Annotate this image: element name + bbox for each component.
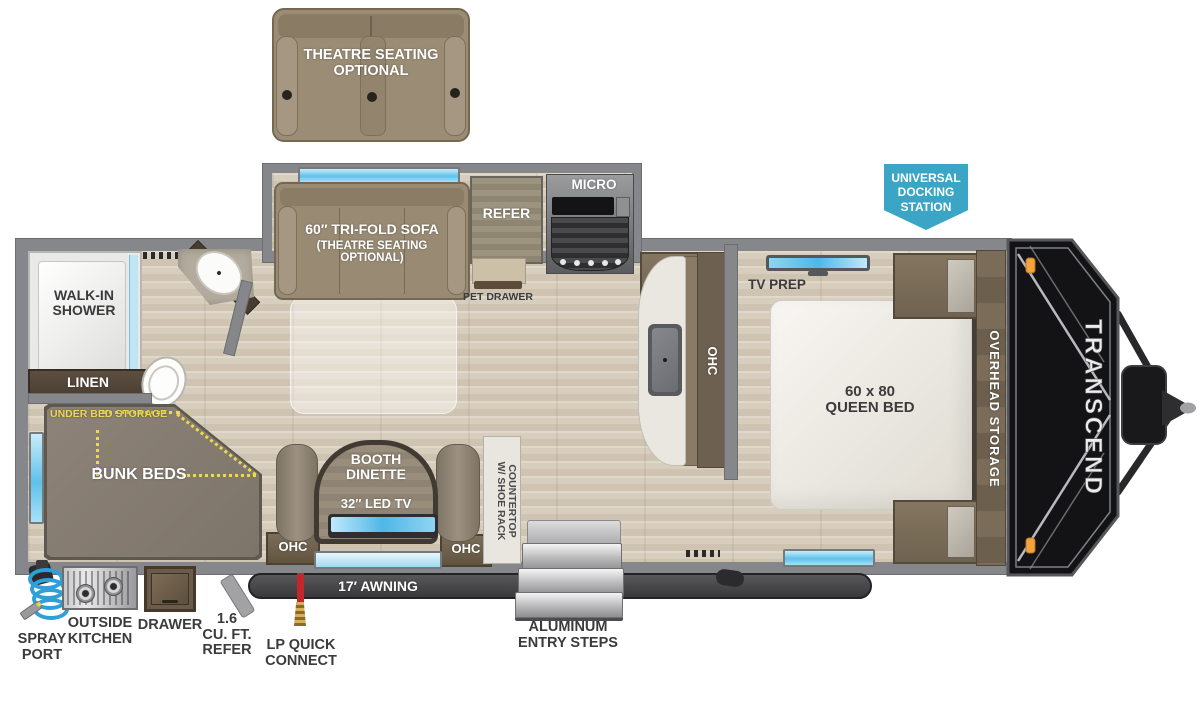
micro-label: MICRO (556, 178, 632, 193)
sofa-title-label: 60″ TRI-FOLD SOFA (284, 222, 460, 237)
outside-kitchen (62, 566, 138, 610)
front-cap-graphic: TRANSCEND (1000, 230, 1200, 600)
bedroom-wardrobe-top (893, 253, 981, 319)
range-knob-icon (574, 260, 580, 266)
kitchen-sink (648, 324, 682, 396)
under-bed-storage-label: UNDER BED STORAGE (50, 409, 186, 420)
sofa-backrest (280, 188, 464, 206)
range-knob-icon (615, 259, 621, 265)
pet-drawer-label: PET DRAWER (458, 292, 538, 303)
refer-label: REFER (470, 206, 543, 221)
kitchen-ohc-cabinet: OHC (697, 252, 725, 468)
bunk-divider-wall (28, 393, 152, 404)
marker-light-icon (1026, 538, 1035, 553)
lp-connector-icon (294, 602, 306, 626)
tv-screen (331, 517, 435, 532)
bunk-window (29, 432, 44, 524)
cupholder-icon (367, 92, 377, 102)
dinette-bench-right (436, 444, 480, 542)
drawer-label: DRAWER (136, 618, 204, 634)
sofa-sub-label: (THEATRE SEATING OPTIONAL) (284, 240, 460, 265)
burner-icon (104, 577, 123, 596)
bunk-beds-label: BUNK BEDS (84, 466, 194, 483)
microwave (552, 197, 614, 215)
countertop-label: COUNTERTOP W/ SHOE RACK (487, 436, 517, 566)
kitchen-ohc-label: OHC (703, 331, 719, 391)
outside-kitchen-label: OUTSIDE KITCHEN (58, 616, 142, 647)
tv-prep-label: TV PREP (722, 278, 832, 293)
drawer-handle-icon (162, 600, 178, 603)
bedroom-window (783, 549, 875, 567)
tv-stand-icon (808, 271, 828, 276)
floorplan: WALK-IN SHOWER LINEN OHC UNDER BED STORA… (0, 0, 1200, 703)
booth-dinette-label: BOOTH DINETTE (318, 452, 434, 482)
theatre-seating-label: THEATRE SEATING OPTIONAL (284, 48, 458, 79)
hitch-knob-icon (1180, 403, 1196, 414)
propane-cover (1122, 366, 1166, 444)
ohc-left-label: OHC (266, 540, 320, 554)
lp-quick-connect-label: LP QUICK CONNECT (260, 638, 342, 669)
slide-path-area (290, 296, 457, 414)
cupholder-icon (282, 90, 292, 100)
range-knob-icon (602, 260, 608, 266)
tv-prep-tv (766, 255, 870, 271)
transcend-logo: TRANSCEND (1080, 319, 1107, 497)
dinette-window (314, 551, 442, 569)
marker-light-icon (1026, 258, 1035, 273)
walk-in-shower-label: WALK-IN SHOWER (36, 288, 132, 318)
awning-label: 17′ AWNING (318, 579, 438, 594)
tv-screen (769, 258, 867, 268)
docking-station-label: UNIVERSAL DOCKING STATION (884, 171, 968, 214)
linen-label: LINEN (28, 375, 148, 390)
wardrobe-mirror (947, 259, 975, 313)
overhead-storage-label: OVERHEAD STORAGE (981, 259, 1001, 559)
micro-control (616, 197, 630, 217)
sink-drain-icon (216, 270, 222, 276)
entry-steps-label: ALUMINUM ENTRY STEPS (498, 620, 638, 651)
theatre-seating: THEATRE SEATING OPTIONAL (272, 8, 470, 142)
queen-bed-label: 60 x 80 QUEEN BED (790, 384, 950, 416)
dinette-bench-left (276, 444, 318, 542)
countertop-shoe-rack: COUNTERTOP W/ SHOE RACK (483, 436, 521, 564)
cupholder-icon (450, 88, 460, 98)
entry-step (522, 543, 622, 571)
lp-line-icon (297, 573, 304, 603)
range-cooktop (551, 217, 629, 271)
led-tv-label: 32″ LED TV (318, 497, 434, 511)
mini-refer-label: 1.6 CU. FT. REFER (196, 612, 258, 659)
pet-drawer (474, 281, 522, 289)
furnace-vent-icon (686, 550, 720, 557)
wardrobe-mirror (947, 506, 975, 558)
dinette-tv (328, 514, 438, 538)
burner-icon (76, 584, 95, 603)
docking-station-badge: UNIVERSAL DOCKING STATION (884, 164, 968, 230)
bedroom-wardrobe-bottom (893, 500, 981, 564)
entry-step (515, 592, 623, 618)
range-knob-icon (588, 260, 594, 266)
exterior-drawer (144, 566, 196, 612)
sink-drain-icon (663, 358, 667, 362)
range-knob-icon (560, 259, 566, 265)
